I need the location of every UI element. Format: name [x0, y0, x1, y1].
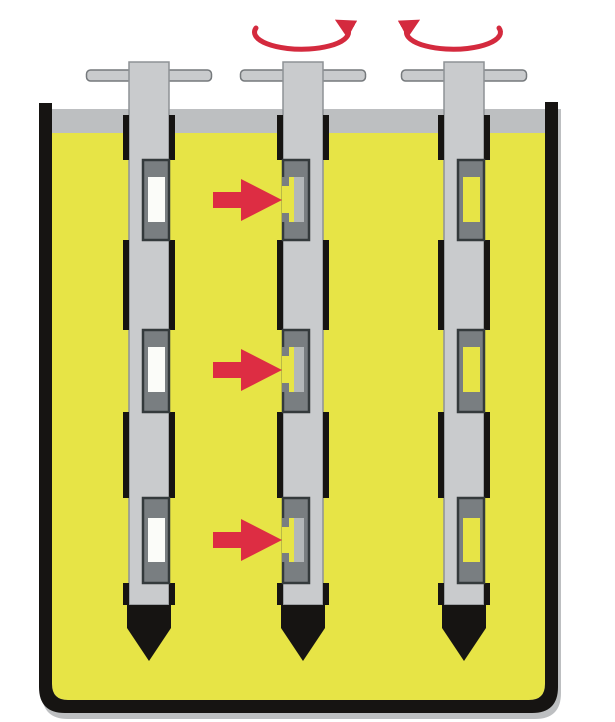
rotation-arrow-icon [255, 23, 349, 49]
slot-closed-filled [458, 498, 484, 583]
sample-window-filled [463, 518, 480, 562]
slot-closed-filled [458, 330, 484, 412]
slot-open-filling [282, 330, 309, 412]
sample-window-filled [463, 177, 480, 222]
rotation-arrow-icon [406, 23, 500, 49]
slot-closed-filled [458, 160, 484, 240]
sample-window-empty [148, 347, 165, 392]
sample-window-filled [463, 347, 480, 392]
slot-open-filling [282, 160, 309, 240]
sampler-diagram [0, 0, 615, 722]
diagram-canvas [0, 0, 615, 722]
sample-window-empty [148, 177, 165, 222]
sample-window-empty [148, 518, 165, 562]
slot-closed-empty [143, 498, 169, 583]
slot-closed-empty [143, 330, 169, 412]
slot-open-filling [282, 498, 309, 583]
slot-closed-empty [143, 160, 169, 240]
